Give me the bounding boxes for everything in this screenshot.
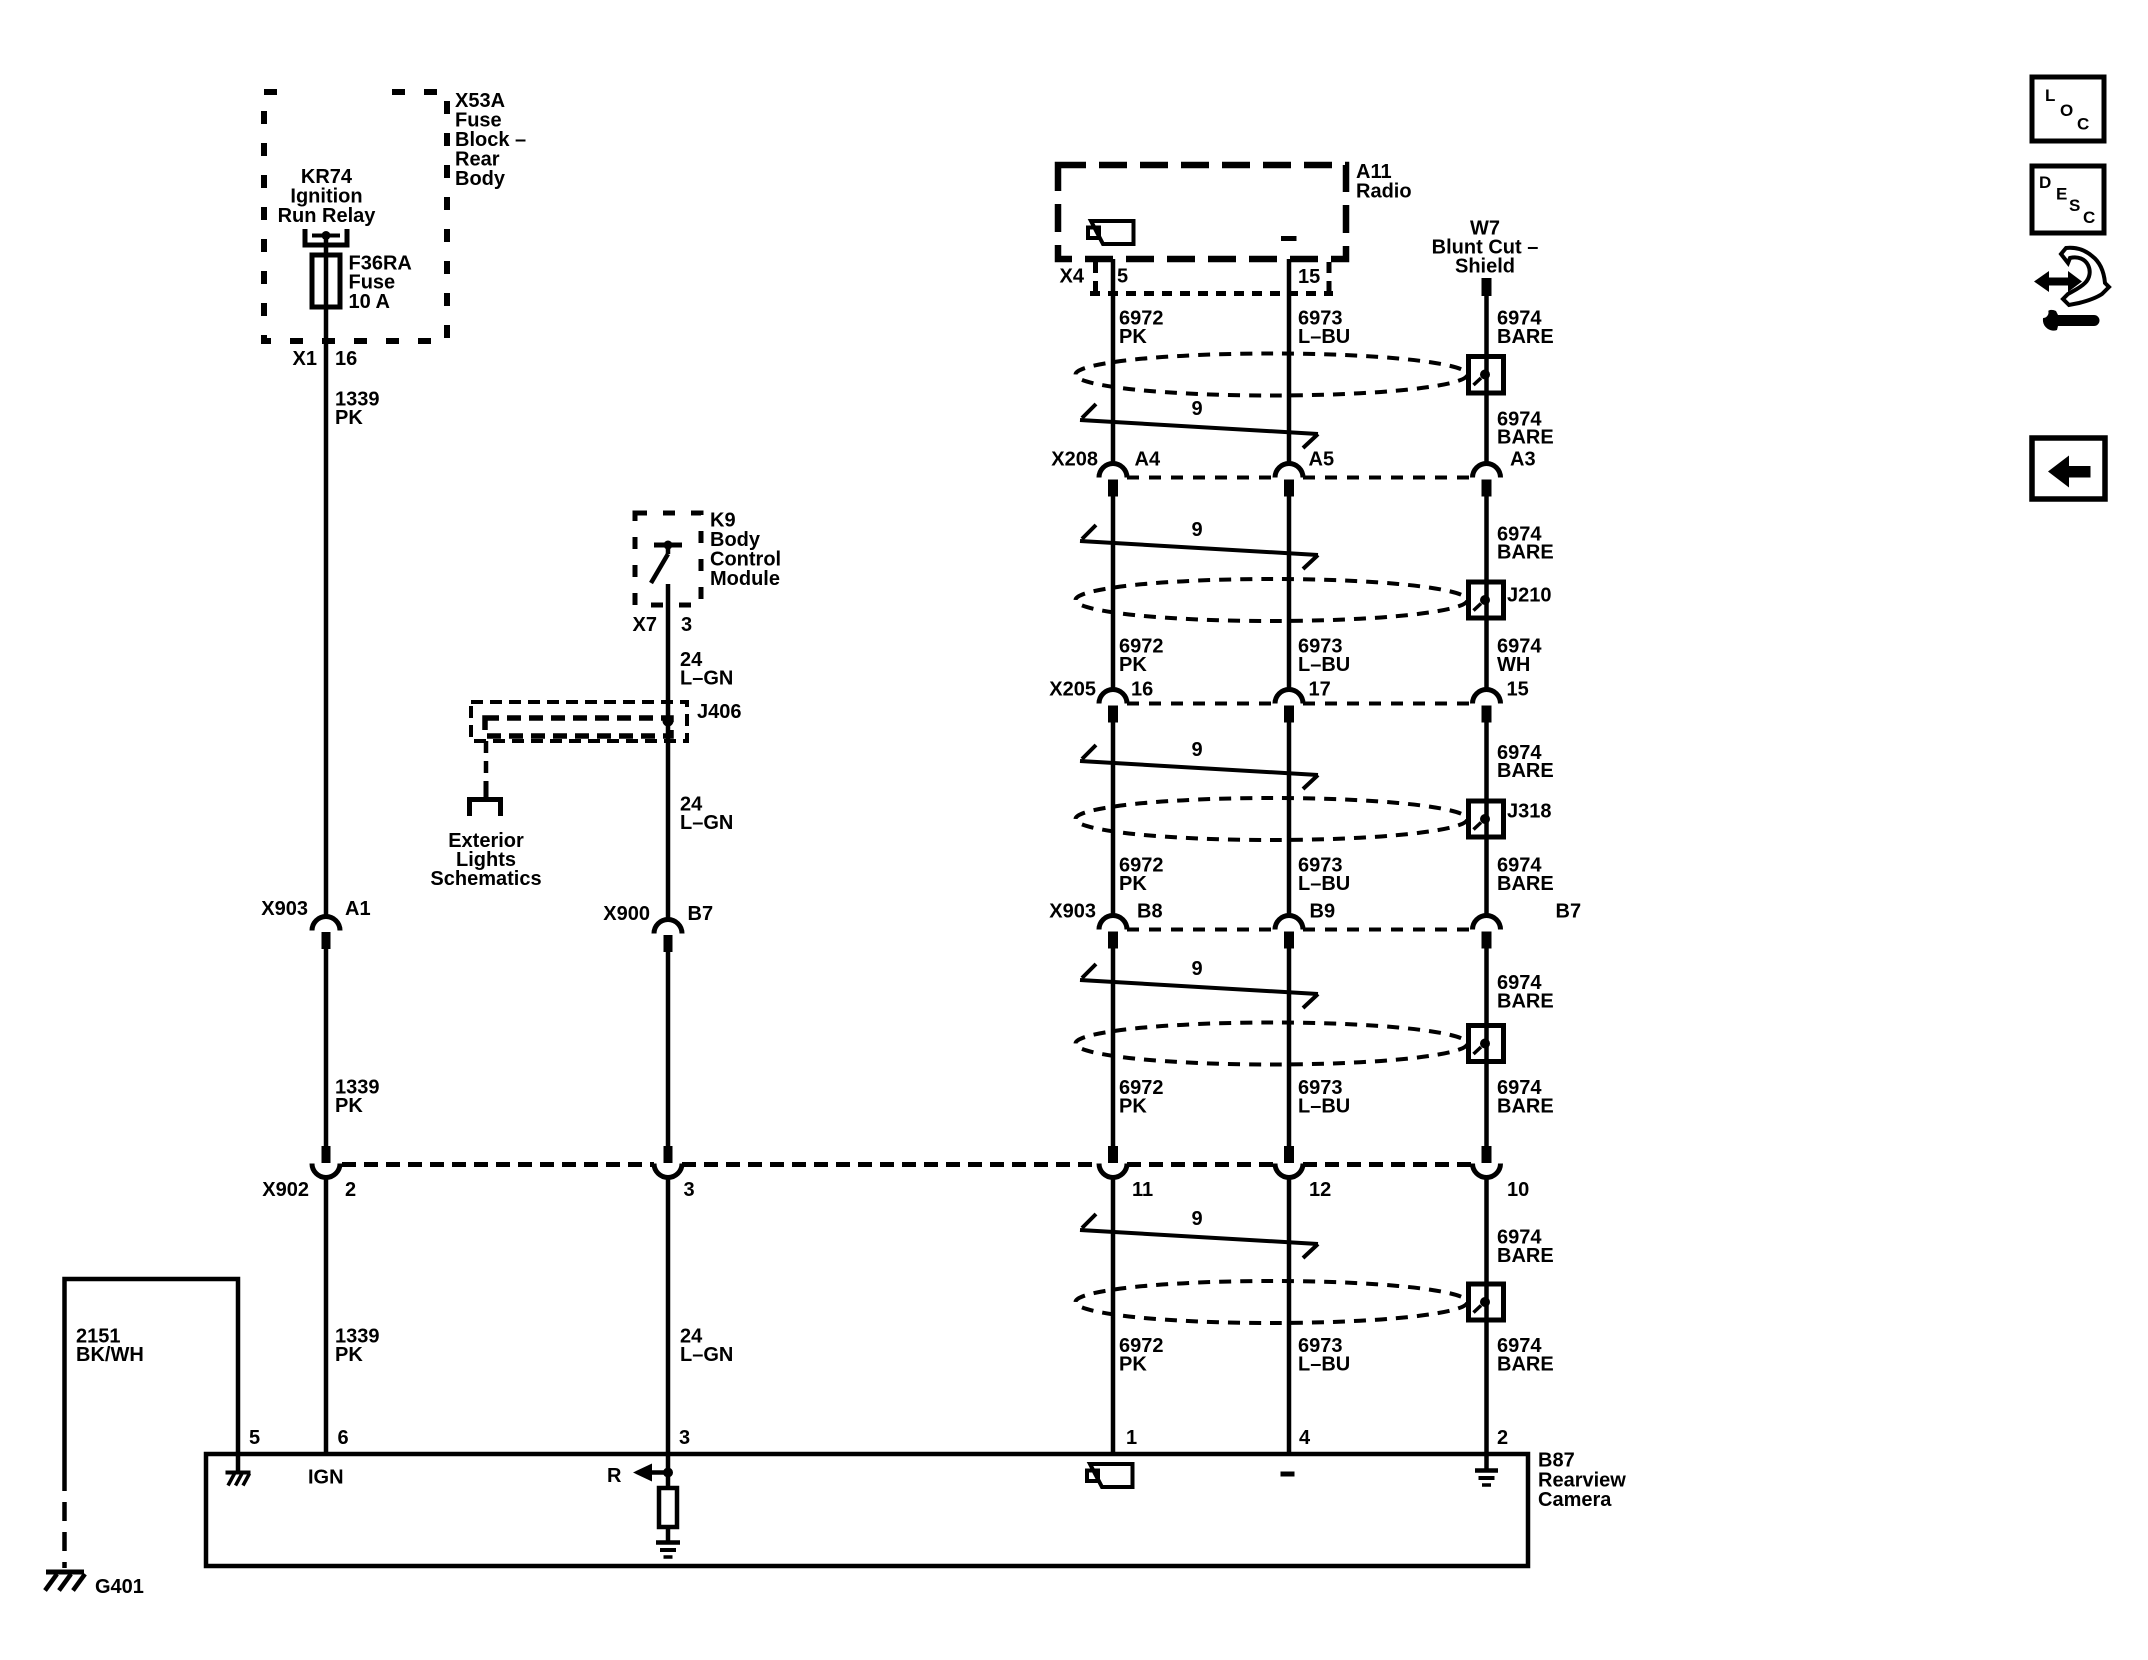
svg-text:L: L xyxy=(2045,86,2055,105)
svg-text:PK: PK xyxy=(1119,1096,1147,1118)
svg-text:J210: J210 xyxy=(1507,585,1552,607)
svg-text:L–GN: L–GN xyxy=(680,812,733,834)
svg-text:X7: X7 xyxy=(633,614,657,636)
svg-text:B9: B9 xyxy=(1310,901,1336,923)
svg-text:IGN: IGN xyxy=(308,1467,344,1489)
svg-text:B8: B8 xyxy=(1137,901,1163,923)
svg-text:3: 3 xyxy=(679,1427,690,1449)
svg-text:PK: PK xyxy=(335,1095,363,1117)
svg-text:PK: PK xyxy=(1119,326,1147,348)
svg-text:17: 17 xyxy=(1309,679,1331,701)
svg-text:BARE: BARE xyxy=(1497,542,1554,564)
svg-text:L–BU: L–BU xyxy=(1298,1096,1350,1118)
svg-text:2: 2 xyxy=(1497,1427,1508,1449)
svg-text:16: 16 xyxy=(335,348,357,370)
svg-text:B87: B87 xyxy=(1538,1450,1575,1472)
svg-text:3: 3 xyxy=(681,614,692,636)
svg-text:L–GN: L–GN xyxy=(680,668,733,690)
svg-text:9: 9 xyxy=(1191,739,1202,761)
svg-text:X4: X4 xyxy=(1060,266,1085,288)
svg-text:15: 15 xyxy=(1507,679,1529,701)
svg-text:11: 11 xyxy=(1132,1179,1153,1201)
svg-text:5: 5 xyxy=(1117,266,1128,288)
svg-text:1: 1 xyxy=(1126,1427,1137,1449)
svg-text:10 A: 10 A xyxy=(349,291,391,313)
svg-text:BARE: BARE xyxy=(1497,326,1554,348)
svg-text:BARE: BARE xyxy=(1497,1096,1554,1118)
svg-text:J406: J406 xyxy=(697,701,742,723)
svg-text:PK: PK xyxy=(1119,873,1147,895)
svg-text:A3: A3 xyxy=(1510,449,1536,471)
svg-text:O: O xyxy=(2060,101,2073,120)
svg-text:S: S xyxy=(2069,196,2080,215)
svg-text:X902: X902 xyxy=(262,1179,309,1201)
svg-text:16: 16 xyxy=(1131,679,1153,701)
svg-text:BARE: BARE xyxy=(1497,760,1554,782)
svg-text:X1: X1 xyxy=(293,348,317,370)
svg-text:BARE: BARE xyxy=(1497,427,1554,449)
svg-text:PK: PK xyxy=(1119,1354,1147,1376)
svg-text:15: 15 xyxy=(1298,266,1320,288)
svg-text:9: 9 xyxy=(1191,519,1202,541)
svg-text:Module: Module xyxy=(710,568,780,590)
svg-text:G401: G401 xyxy=(95,1576,144,1598)
svg-text:12: 12 xyxy=(1309,1179,1331,1201)
svg-text:B7: B7 xyxy=(688,903,714,925)
svg-text:E: E xyxy=(2056,185,2067,204)
svg-text:BARE: BARE xyxy=(1497,1354,1554,1376)
svg-text:BARE: BARE xyxy=(1497,1245,1554,1267)
svg-text:Radio: Radio xyxy=(1356,181,1412,203)
svg-text:BARE: BARE xyxy=(1497,991,1554,1013)
svg-text:5: 5 xyxy=(249,1427,260,1449)
svg-text:R: R xyxy=(607,1465,622,1487)
svg-text:X903: X903 xyxy=(1049,901,1096,923)
svg-text:L–BU: L–BU xyxy=(1298,1354,1350,1376)
svg-text:BARE: BARE xyxy=(1497,873,1554,895)
svg-text:9: 9 xyxy=(1191,958,1202,980)
svg-text:A5: A5 xyxy=(1309,449,1335,471)
svg-text:4: 4 xyxy=(1299,1427,1311,1449)
svg-text:L–BU: L–BU xyxy=(1298,873,1350,895)
svg-text:6: 6 xyxy=(338,1427,349,1449)
svg-text:Shield: Shield xyxy=(1455,256,1515,278)
svg-text:C: C xyxy=(2083,208,2095,227)
svg-text:PK: PK xyxy=(335,407,363,429)
svg-text:J318: J318 xyxy=(1507,801,1552,823)
svg-text:C: C xyxy=(2077,115,2089,134)
svg-text:Camera: Camera xyxy=(1538,1489,1612,1511)
svg-text:X903: X903 xyxy=(261,898,308,920)
svg-text:Run Relay: Run Relay xyxy=(278,205,377,227)
svg-text:3: 3 xyxy=(684,1179,695,1201)
svg-text:2: 2 xyxy=(345,1179,356,1201)
svg-text:BK/WH: BK/WH xyxy=(76,1344,144,1366)
svg-text:B7: B7 xyxy=(1556,901,1582,923)
svg-text:X205: X205 xyxy=(1049,679,1096,701)
svg-text:10: 10 xyxy=(1507,1179,1529,1201)
svg-text:WH: WH xyxy=(1497,654,1530,676)
svg-text:A4: A4 xyxy=(1135,449,1161,471)
svg-text:L–BU: L–BU xyxy=(1298,326,1350,348)
svg-text:A1: A1 xyxy=(345,898,371,920)
svg-text:X208: X208 xyxy=(1051,449,1098,471)
svg-text:L–BU: L–BU xyxy=(1298,654,1350,676)
svg-text:L–GN: L–GN xyxy=(680,1344,733,1366)
svg-text:Schematics: Schematics xyxy=(430,868,541,890)
svg-text:PK: PK xyxy=(1119,654,1147,676)
svg-text:9: 9 xyxy=(1191,398,1202,420)
svg-text:9: 9 xyxy=(1191,1208,1202,1230)
svg-text:D: D xyxy=(2039,173,2051,192)
svg-text:PK: PK xyxy=(335,1344,363,1366)
svg-text:X900: X900 xyxy=(603,903,650,925)
svg-text:Body: Body xyxy=(455,168,506,190)
